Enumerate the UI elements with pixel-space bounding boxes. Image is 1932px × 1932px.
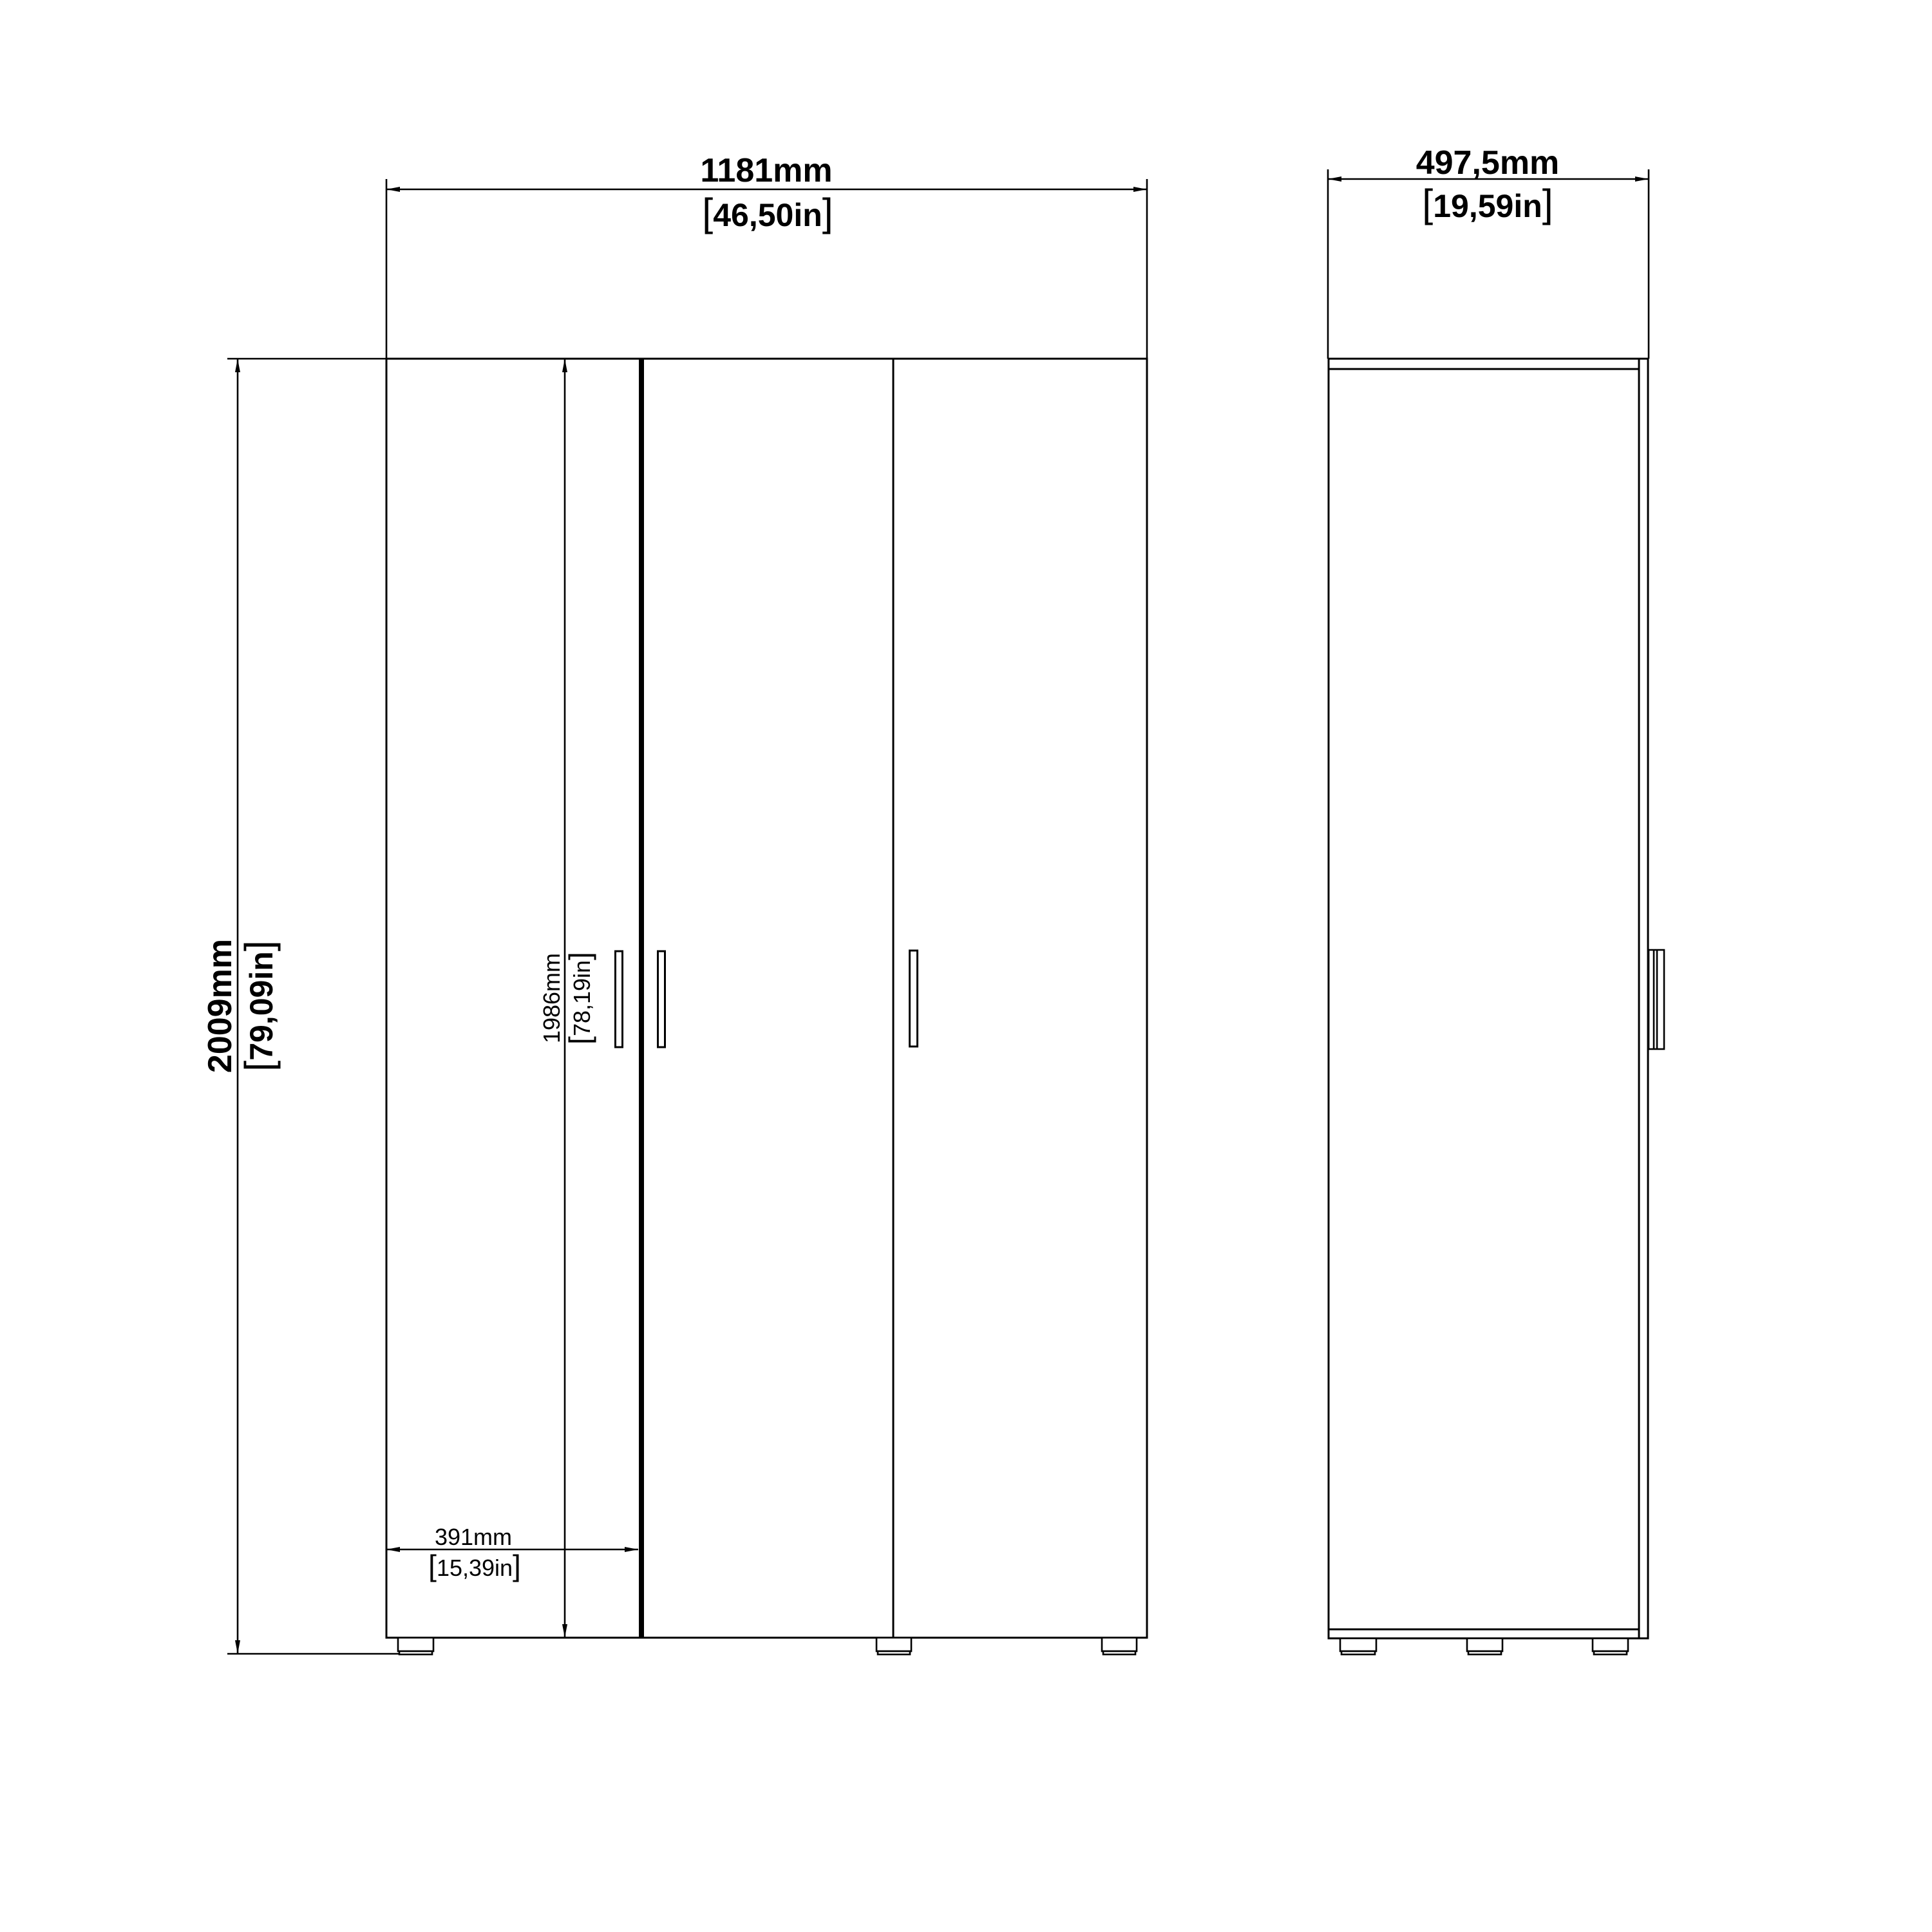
- svg-text:497,5mm: 497,5mm: [1416, 144, 1560, 182]
- svg-text:2009mm: 2009mm: [202, 939, 239, 1073]
- svg-text:1181mm: 1181mm: [700, 152, 832, 189]
- svg-text:1986mm: 1986mm: [538, 953, 565, 1043]
- svg-text:[79,09in]: [79,09in]: [237, 940, 281, 1071]
- svg-text:391mm: 391mm: [435, 1524, 512, 1550]
- svg-text:[19,59in]: [19,59in]: [1422, 182, 1553, 225]
- svg-text:[46,50in]: [46,50in]: [702, 191, 833, 234]
